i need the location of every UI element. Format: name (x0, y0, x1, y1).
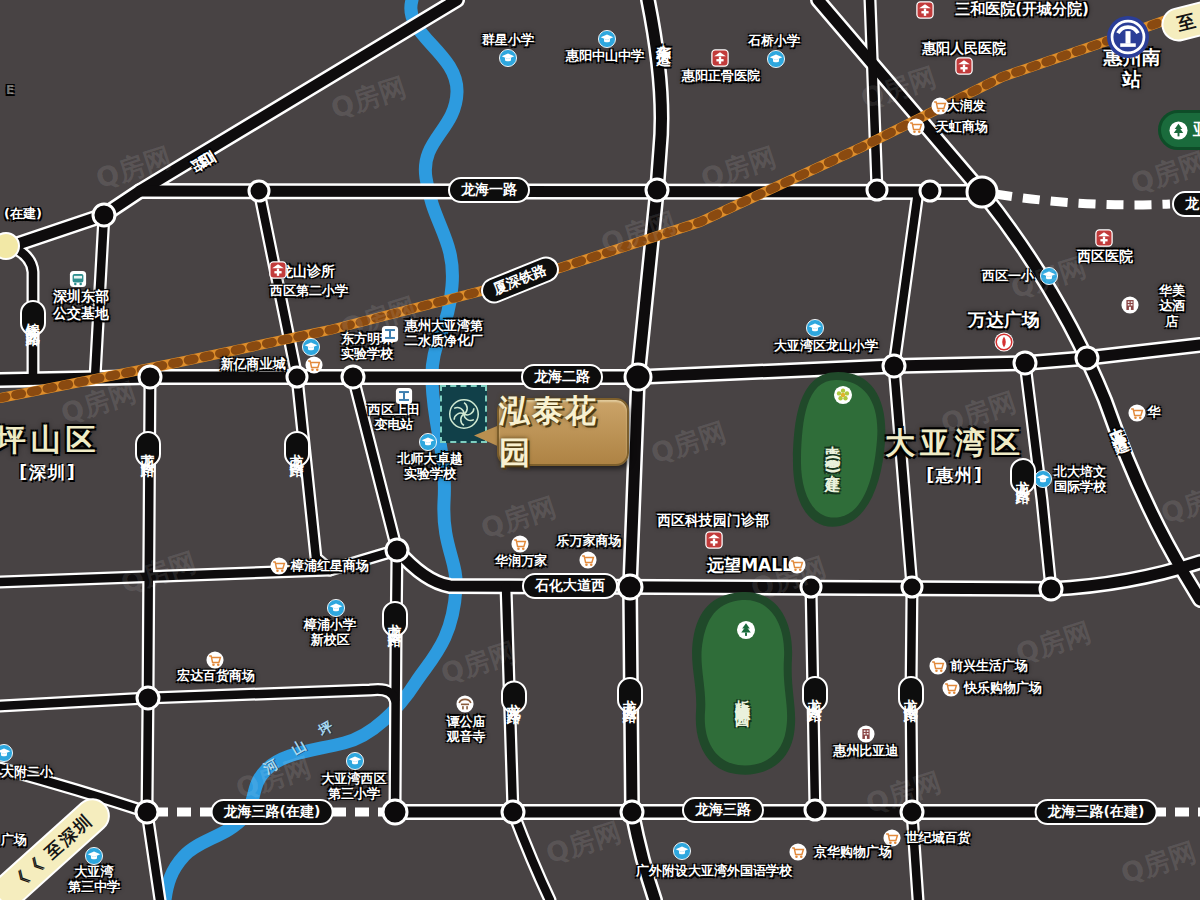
temple-icon (456, 695, 474, 713)
school-icon (1034, 470, 1052, 488)
road-label-pill: 龙山八路 (1010, 458, 1036, 494)
school-icon (499, 49, 517, 67)
map-note: (在建) (4, 205, 42, 223)
poi-label: 西区第二小学 (270, 283, 348, 298)
factory-icon (381, 325, 399, 343)
road-label-pill: 龙海二路 (521, 364, 603, 390)
school-icon (767, 50, 785, 68)
poi-label: 华 (1148, 404, 1161, 419)
park-pill-yagongding: 亚 (1158, 110, 1200, 150)
railway (0, 8, 1200, 398)
school-icon (327, 599, 345, 617)
flower-icon (834, 386, 853, 405)
school-icon (806, 319, 824, 337)
poi-label: 惠阳人民医院 (922, 40, 1006, 57)
project-logo-icon (445, 395, 483, 433)
poi-label: 万达广场 (968, 309, 1040, 330)
poi-label: 惠州比亚迪 (834, 743, 899, 758)
park-status: (在建) (824, 454, 842, 476)
road-label-pill: 龙海一路 (448, 177, 530, 203)
wanda-icon (994, 332, 1014, 352)
road-label-pill: 龙山六路 (802, 676, 828, 712)
poi-label: 三和医院(开城分院) (955, 1, 1089, 19)
road-label-pill: 龙海三路(在建) (211, 799, 334, 825)
road-label-pill: 龙山一路 (135, 431, 161, 467)
poi-label: 新亿商业城 (221, 356, 286, 371)
poi-label: 北大培文 国际学校 (1054, 464, 1106, 495)
cart-icon (907, 118, 925, 136)
road-label-pill: 龙山五路 (617, 677, 643, 713)
road-name: 东华大道 (654, 31, 673, 43)
poi-label: 西区科技园门诊部 (657, 512, 769, 529)
road-label-pill: 龙海三路 (682, 797, 764, 823)
cart-icon (931, 97, 949, 115)
tree-icon (737, 621, 756, 640)
poi-label: 远望MALL (707, 555, 793, 575)
poi-label: 北师大卓越 实验学校 (398, 451, 463, 482)
park-label-banzhangling: 板障岭森林公园 (733, 688, 752, 702)
road-label-pill: 龙山二路 (284, 431, 310, 467)
train-icon (1107, 16, 1149, 58)
tree-icon (1169, 121, 1188, 140)
building-icon (857, 725, 875, 743)
building-icon (1121, 296, 1139, 314)
junction-dots (93, 177, 1098, 824)
cart-icon (270, 557, 288, 575)
poi-label: 惠阳正骨医院 (682, 68, 760, 83)
area-label-pingshan: 坪山区 [深圳] (0, 420, 101, 484)
area-label-dayawan: 大亚湾区 [惠州] (885, 423, 1025, 487)
poi-label: 前兴生活广场 (950, 658, 1028, 673)
poi-label: 广外附设大亚湾外国语学校 (636, 863, 792, 878)
hospital-icon (711, 49, 729, 67)
cart-icon (942, 679, 960, 697)
cart-icon (788, 556, 806, 574)
area-subname: [惠州] (885, 464, 1025, 487)
hospital-icon (1095, 229, 1113, 247)
road-label-pill: 石化大道西 (522, 573, 618, 599)
area-subname: [深圳] (0, 461, 101, 484)
poi-label: 大润发 (947, 98, 986, 113)
school-icon (0, 744, 13, 762)
poi-label: 惠阳中山中学 (566, 48, 644, 63)
school-icon (85, 847, 103, 865)
poi-label: 樟浦小学 新校区 (304, 617, 356, 648)
school-icon (673, 842, 691, 860)
school-icon (419, 433, 437, 451)
poi-label: 大亚湾西区 第三小学 (322, 771, 387, 802)
park-label-children: 大亚湾儿童公园(在建) (823, 434, 842, 476)
park-pill-label: 亚 (1193, 120, 1200, 141)
poi-label: 宏达百货商场 (177, 668, 255, 683)
map-canvas: 坪山区 [深圳] 大亚湾区 [惠州] 泓泰花园 亚 群星小学惠阳中山中学石桥小学… (0, 0, 1200, 900)
poi-label: 惠州大亚湾第 二水质净化厂 (405, 318, 483, 349)
road-label-pill: 龙兴路 (501, 681, 527, 714)
factory-icon (395, 387, 413, 405)
school-icon (1040, 267, 1058, 285)
map-note: E (6, 83, 14, 97)
poi-label: 石桥小学 (748, 33, 800, 48)
area-name: 坪山区 (0, 420, 101, 461)
road-label-pill: 龙海三路(在建) (1035, 799, 1158, 825)
hospital-icon (705, 531, 723, 549)
poi-label: 乐万家商场 (557, 533, 622, 548)
hospital-icon (916, 1, 934, 19)
project-name: 泓泰花园 (499, 390, 627, 474)
hospital-icon (269, 261, 287, 279)
road-label-pill: 龙 (1172, 191, 1200, 217)
school-icon (302, 338, 320, 356)
poi-label: 西区医院 (1077, 248, 1133, 265)
poi-label: 华润万家 (495, 553, 547, 568)
poi-label: 大附二小 (1, 764, 53, 779)
school-icon (598, 30, 616, 48)
poi-label: 西区上田 变电站 (368, 402, 420, 433)
area-name: 大亚湾区 (885, 423, 1025, 464)
cart-icon (789, 843, 807, 861)
hospital-icon (955, 57, 973, 75)
poi-label: 群星小学 (482, 32, 534, 47)
cart-icon (511, 535, 529, 553)
poi-label: 华美达酒店 (1158, 283, 1186, 329)
cart-icon (1128, 404, 1146, 422)
road-label-pill: 龙山三路 (382, 601, 408, 637)
poi-label: 大亚湾区龙山小学 (774, 338, 878, 353)
road-end-cap (0, 233, 19, 259)
poi-label: 世纪城百货 (906, 830, 971, 845)
cart-icon (929, 657, 947, 675)
project-label-bubble: 泓泰花园 (497, 398, 629, 466)
park-name: 大亚湾儿童公园 (824, 434, 842, 448)
bus-icon (69, 270, 87, 288)
cart-icon (206, 651, 224, 669)
poi-label: 天虹商场 (936, 119, 988, 134)
poi-label: 快乐购物广场 (964, 680, 1042, 695)
cart-icon (579, 551, 597, 569)
poi-label: 京华购物广场 (814, 844, 892, 859)
cart-icon (305, 356, 323, 374)
school-icon (346, 752, 364, 770)
poi-label: 谭公庙 观音寺 (447, 714, 486, 745)
poi-label: 大亚湾 第三中学 (68, 864, 120, 895)
park-banzhangling (692, 592, 795, 775)
map-note: 广场 (1, 831, 27, 849)
poi-label: 深圳东部 公交基地 (53, 288, 109, 321)
road-label-pill: 龙山七路 (898, 676, 924, 712)
poi-label: 龙山诊所 (279, 263, 335, 280)
road-label-pill: 锦绣北路 (20, 300, 46, 336)
poi-label: 西区一小 (982, 268, 1034, 283)
poi-label: 樟浦红星商场 (291, 558, 369, 573)
